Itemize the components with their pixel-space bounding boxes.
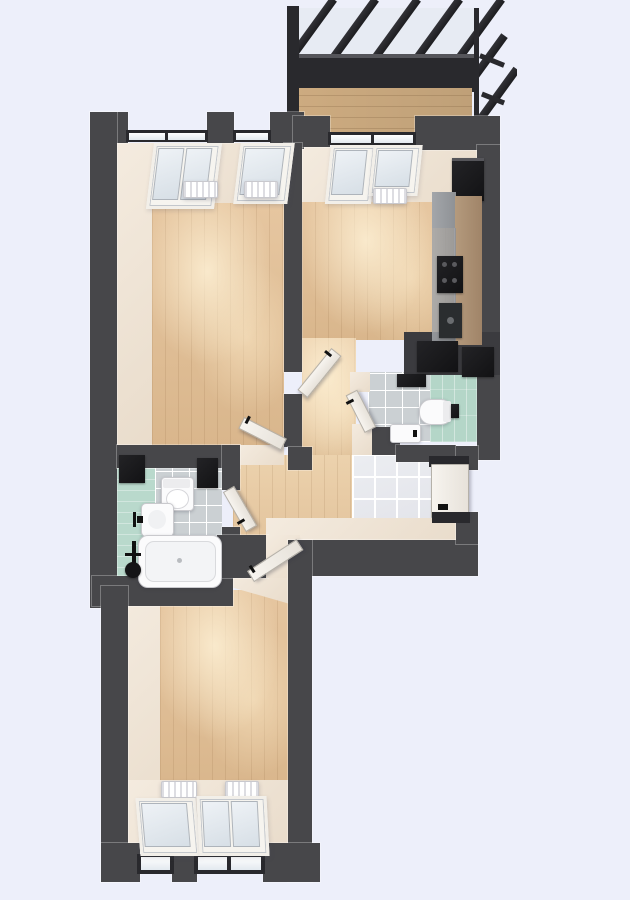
burner-icon [442,278,447,283]
door-handle-icon [346,399,354,405]
bathtub [138,535,222,588]
towel-rail-icon [133,512,136,527]
wc-washbasin [390,424,421,443]
entrance-door-frame-bottom [432,512,470,523]
window-glazing-strip [126,130,208,142]
balcony-beam [293,54,475,92]
bedroom-window-glazing [137,854,174,874]
dark-counter-right [462,347,494,377]
living-room-floor [152,203,284,448]
bathroom-washbasin [141,503,174,537]
kitchen-upper-cabinet [432,192,456,228]
wall-bedroom-bottom-right [263,843,320,882]
window-pane [331,135,371,143]
wall-bedroom-right [288,540,312,882]
wall-bedroom-bottom-left [101,843,140,882]
burner-icon [442,262,447,267]
radiator [373,188,407,204]
faucet-icon [413,430,417,437]
window-pane [152,148,184,200]
shower-arm-icon [125,553,141,556]
wall-left-outer [90,112,117,608]
window-pane [141,803,191,847]
radiator [183,181,218,198]
dark-counter-left [417,341,458,372]
bedroom-floor [160,590,290,790]
drain-icon [177,558,182,563]
wall-hall-bottom [300,540,478,576]
wc-door-jamb-top [350,372,370,392]
faucet-icon [137,516,143,523]
window-pane [168,133,205,140]
window-pane [202,801,231,847]
shower-head-icon [125,562,141,578]
toilet-tank [443,401,451,422]
floor-plan [0,0,630,900]
window-pane [331,150,368,195]
door-handle-icon [438,504,448,510]
flush-plate [451,404,459,418]
entrance-door [431,464,469,518]
kitchen-tall-cabinet [452,158,484,201]
radiator [161,781,197,798]
door-handle-icon [237,518,245,525]
window-pane [231,801,260,847]
cooktop [437,256,463,293]
burner-icon [452,278,457,283]
wall-bathroom-right-top [222,445,240,490]
faucet-icon [447,317,454,324]
window-reveal [135,798,200,856]
window-glazing-strip [233,130,271,142]
window-pane [374,135,413,143]
window-pane [198,857,227,870]
door-handle-icon [245,416,251,424]
balcony-door-glazing [328,132,416,145]
wall-bedroom-left [101,586,128,882]
bathroom-cabinet-left [119,455,145,483]
basin-bowl [148,510,166,529]
window-pane [236,133,268,140]
entry-tile-floor [352,452,433,522]
wall-hall-corner [288,447,312,470]
bedroom-window-glazing [194,854,265,874]
burner-icon [452,262,457,267]
window-reveal [196,796,269,856]
kitchen-sink [439,303,462,338]
toilet-tank [163,479,190,488]
wc-toilet [419,399,453,425]
window-pane [374,150,413,187]
door-handle-icon [324,350,332,357]
wc-towel-shelf [397,374,426,387]
wall-top-pillar [207,112,234,143]
door-handle-icon [249,565,256,573]
radiator [244,181,278,198]
window-pane [129,133,165,140]
bathroom-cabinet-right [197,458,218,488]
window-reveal [146,143,222,209]
window-pane [141,857,170,870]
window-pane [231,857,261,870]
